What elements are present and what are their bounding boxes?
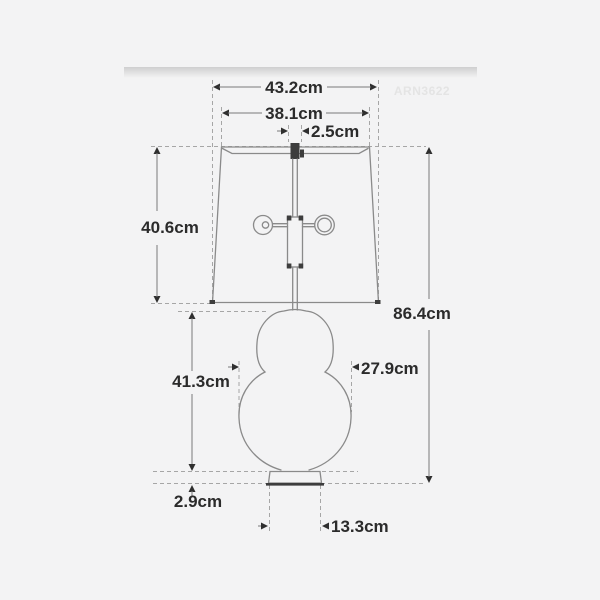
lamp-shade	[210, 147, 381, 304]
dim-shade-top-width-label: 38.1cm	[265, 104, 323, 123]
dim-shade-height-label: 40.6cm	[141, 218, 199, 237]
dim-finial-width-label: 2.5cm	[311, 122, 359, 141]
dim-shade-bottom-width-label: 43.2cm	[265, 78, 323, 97]
lamp-foot	[266, 472, 324, 485]
dim-finial-width: 2.5cm	[277, 122, 359, 141]
dim-foot-width-label: 13.3cm	[331, 517, 389, 536]
dim-foot-width: 13.3cm	[258, 517, 389, 536]
watermark-sku: ARN3622	[394, 84, 450, 98]
dim-base-height: 41.3cm	[172, 312, 230, 471]
switch-knob	[254, 216, 273, 235]
dim-base-width-label: 27.9cm	[361, 359, 419, 378]
dim-overall-height-label: 86.4cm	[393, 304, 451, 323]
lamp-body	[239, 310, 351, 471]
dim-shade-bottom-width: 43.2cm	[213, 78, 377, 97]
dim-shade-height: 40.6cm	[141, 147, 199, 303]
lamp-dimension-diagram: ARN3622	[0, 0, 600, 600]
dim-shade-top-width: 38.1cm	[222, 104, 369, 123]
dim-foot-height-label: 2.9cm	[174, 492, 222, 511]
dim-overall-height: 86.4cm	[393, 147, 451, 483]
lamp-harp-socket	[254, 143, 335, 310]
dim-base-height-label: 41.3cm	[172, 372, 230, 391]
product-dimension-image[interactable]: ARN3622	[0, 0, 600, 600]
finial	[291, 143, 300, 159]
dim-base-width: 27.9cm	[228, 359, 419, 378]
dim-foot-height: 2.9cm	[174, 485, 222, 511]
